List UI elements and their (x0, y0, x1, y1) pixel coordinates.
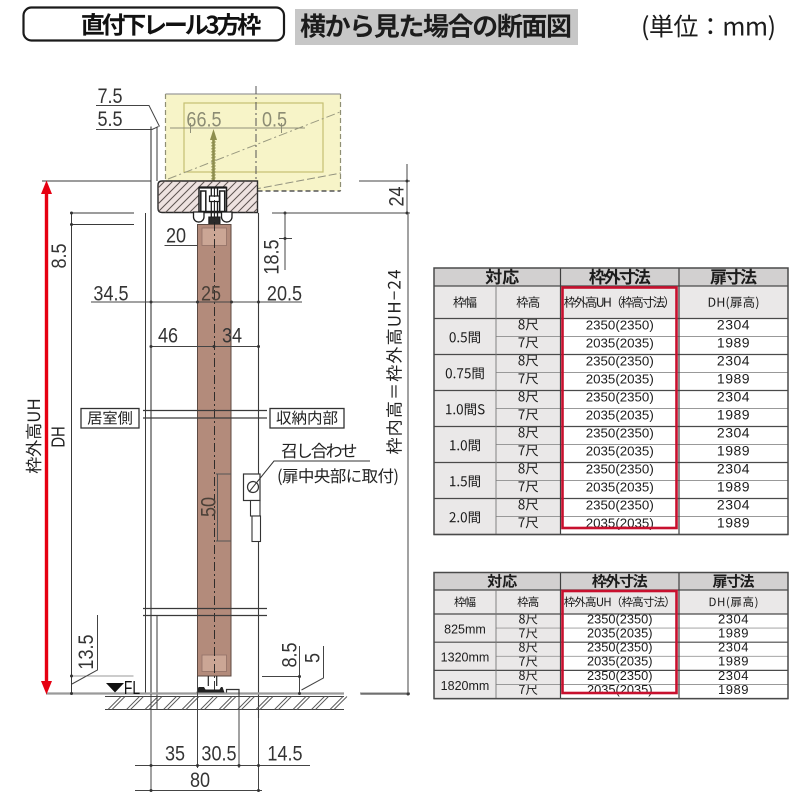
svg-text:2035(2035): 2035(2035) (586, 443, 654, 458)
svg-text:2350(2350): 2350(2350) (586, 389, 654, 404)
svg-text:66.5: 66.5 (186, 108, 221, 132)
svg-text:7.5: 7.5 (97, 85, 122, 109)
svg-text:13.5: 13.5 (75, 634, 99, 669)
svg-text:2350(2350): 2350(2350) (586, 353, 654, 368)
svg-text:FL: FL (124, 678, 140, 698)
svg-text:2035(2035): 2035(2035) (586, 407, 654, 422)
svg-text:5: 5 (301, 653, 325, 663)
svg-text:2350(2350): 2350(2350) (586, 497, 654, 512)
svg-text:24: 24 (385, 186, 409, 206)
svg-text:8.5: 8.5 (278, 642, 302, 667)
svg-text:2350(2350): 2350(2350) (586, 425, 654, 440)
svg-text:2035(2035): 2035(2035) (586, 371, 654, 386)
svg-text:50: 50 (197, 497, 221, 517)
svg-text:30.5: 30.5 (201, 742, 236, 766)
svg-text:34.5: 34.5 (93, 282, 128, 306)
svg-text:35: 35 (165, 742, 185, 766)
svg-text:1820mm: 1820mm (441, 679, 490, 693)
svg-text:2350(2350): 2350(2350) (586, 461, 654, 476)
svg-text:25: 25 (201, 282, 221, 306)
svg-text:20: 20 (166, 224, 186, 248)
svg-text:80: 80 (190, 769, 210, 793)
svg-text:46: 46 (158, 324, 178, 348)
svg-text:18.5: 18.5 (260, 239, 284, 274)
svg-text:0.5: 0.5 (262, 108, 287, 132)
svg-text:2035(2035): 2035(2035) (586, 335, 654, 350)
svg-text:825mm: 825mm (444, 622, 486, 636)
svg-text:14.5: 14.5 (267, 742, 302, 766)
svg-text:34: 34 (222, 324, 242, 348)
svg-text:1320mm: 1320mm (441, 651, 490, 665)
svg-text:DH: DH (48, 426, 69, 447)
svg-text:5.5: 5.5 (97, 108, 122, 132)
svg-text:2035(2035): 2035(2035) (586, 479, 654, 494)
svg-text:8.5: 8.5 (48, 243, 72, 268)
svg-text:20.5: 20.5 (267, 282, 302, 306)
svg-text:2350(2350): 2350(2350) (586, 317, 654, 332)
